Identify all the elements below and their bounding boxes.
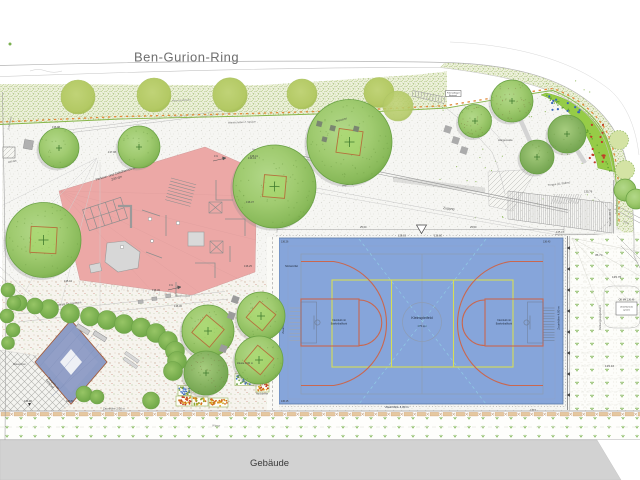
svg-text:136.60: 136.60 <box>434 234 442 238</box>
svg-text:136.30: 136.30 <box>174 304 182 308</box>
svg-text:176.5: 176.5 <box>530 409 537 412</box>
svg-text:135.47: 135.47 <box>556 230 564 234</box>
svg-text:1%: 1% <box>214 154 219 158</box>
svg-text:Unterflurmüll-: Unterflurmüll- <box>620 306 633 309</box>
svg-text:25,00: 25,00 <box>470 225 477 229</box>
svg-text:Zaunhöhe 2,00 m: Zaunhöhe 2,00 m <box>103 407 126 411</box>
svg-text:137.08: 137.08 <box>108 150 116 154</box>
svg-text:136.43: 136.43 <box>543 241 551 244</box>
svg-text:35.74: 35.74 <box>595 253 603 257</box>
svg-text:135.76: 135.76 <box>584 190 593 194</box>
svg-text:136.36: 136.36 <box>152 288 160 292</box>
svg-text:136.26: 136.26 <box>24 399 32 403</box>
svg-text:Rettungswegzufahrt: Rettungswegzufahrt <box>598 305 602 330</box>
svg-text:136.41: 136.41 <box>250 154 258 158</box>
svg-text:Hochbeete: Hochbeete <box>256 393 269 396</box>
svg-text:Basketballkorb: Basketballkorb <box>496 323 513 326</box>
svg-text:Wiese: Wiese <box>212 424 221 428</box>
svg-text:Gebäude: Gebäude <box>250 458 289 469</box>
svg-text:Sitzwürfel: Sitzwürfel <box>285 264 298 268</box>
svg-text:Hängematte: Hängematte <box>498 138 513 142</box>
svg-text:136.80: 136.80 <box>66 400 74 403</box>
svg-text:136.25: 136.25 <box>244 264 252 268</box>
svg-text:Ben-Gurion-Ring: Ben-Gurion-Ring <box>134 50 239 65</box>
svg-text:135.44: 135.44 <box>64 279 72 283</box>
svg-text:136.98: 136.98 <box>52 125 60 129</box>
svg-text:135.16: 135.16 <box>605 364 615 368</box>
svg-text:136.63: 136.63 <box>398 234 406 238</box>
svg-text:1%: 1% <box>169 283 174 287</box>
svg-text:Terrasse 200 m: Terrasse 200 m <box>609 209 612 226</box>
svg-text:175 qm: 175 qm <box>417 324 427 328</box>
svg-text:Fahrradbügel: Fahrradbügel <box>447 91 460 94</box>
svg-text:135.76: 135.76 <box>612 275 622 279</box>
svg-text:136.26: 136.26 <box>281 241 289 244</box>
svg-text:Basketballkorb: Basketballkorb <box>331 323 348 326</box>
svg-text:Zaunhöhe 4,00 m: Zaunhöhe 4,00 m <box>557 306 561 330</box>
svg-text:Zäune 2,00 m: Zäune 2,00 m <box>237 361 253 365</box>
svg-text:136.15: 136.15 <box>281 400 289 403</box>
svg-text:Bestand: Bestand <box>449 94 457 97</box>
svg-text:Zaunhöhe 4,00 m: Zaunhöhe 4,00 m <box>385 405 409 409</box>
svg-text:system: system <box>623 309 630 312</box>
svg-text:25,00: 25,00 <box>360 225 367 229</box>
svg-text:Kleinspielfeld: Kleinspielfeld <box>411 316 432 320</box>
svg-text:Mäuerchen: Mäuerchen <box>13 362 27 366</box>
svg-text:136.37: 136.37 <box>246 200 254 204</box>
